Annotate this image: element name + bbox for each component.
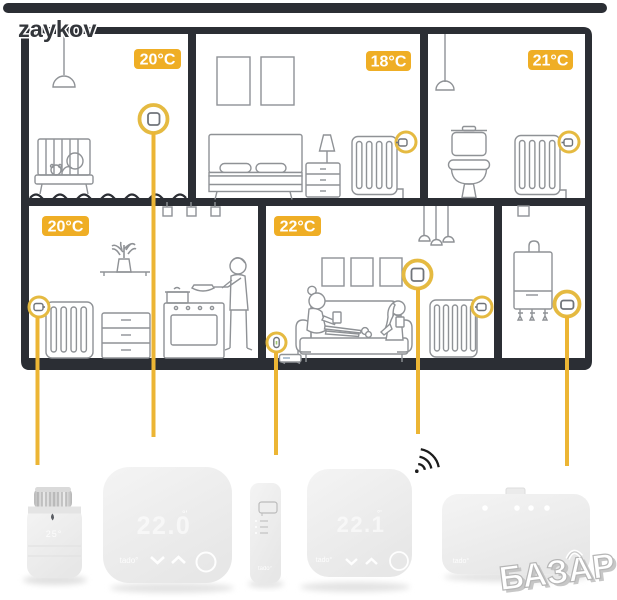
svg-text:°': °' [182,509,188,519]
svg-text:tado°: tado° [120,556,139,565]
svg-text:tado°: tado° [316,556,333,564]
svg-text:18°C: 18°C [371,54,407,71]
svg-text:tado°: tado° [258,566,273,572]
svg-text:°': °' [377,509,382,518]
svg-text:25°: 25° [46,529,63,539]
svg-text:22°C: 22°C [280,219,316,236]
svg-text:20°C: 20°C [48,219,84,236]
svg-text:21°C: 21°C [533,53,569,70]
svg-text:zaykov: zaykov [18,16,96,42]
svg-text:20°C: 20°C [140,52,176,69]
svg-text:tado°: tado° [453,557,470,565]
